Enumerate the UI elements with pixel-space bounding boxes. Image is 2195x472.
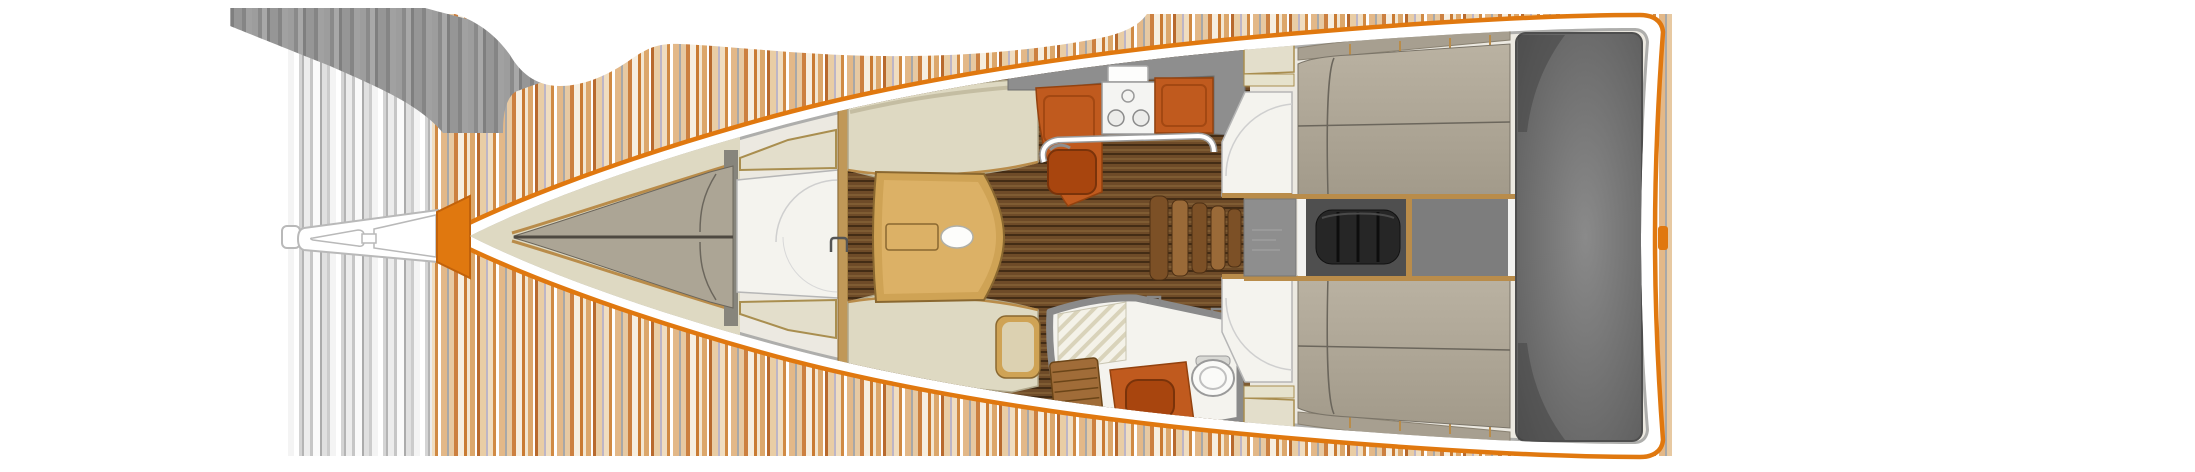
galley-oven [1108,66,1148,82]
boat-floorplan-image [0,0,2195,472]
port-locker-shelf [1244,386,1294,398]
engine-compartment [1244,194,1516,281]
separator-left [1298,199,1306,276]
machinery-divider [1406,199,1412,276]
companionway-step-1 [1150,196,1168,280]
stbd-locker-shelf [1244,74,1294,86]
aft-bay [1412,199,1508,276]
chaise-cushion [1002,322,1034,372]
companionway-step-4 [1211,206,1225,270]
systems-panel [1244,199,1296,276]
toilet-bowl [1192,360,1234,396]
table-sink-oval [941,226,973,248]
main-bulkhead [838,88,848,384]
companionway-step-5 [1228,209,1241,267]
companionway-step-3 [1192,203,1207,273]
bowsprit-joint [362,234,376,243]
stbd-berth [1298,44,1510,196]
separator-right [1508,199,1516,276]
saloon-table-top [882,180,996,294]
stove-burner-left [1108,110,1124,126]
port-berth [1298,276,1510,428]
cockpit-floor [1516,33,1642,441]
stern-fitting [1658,226,1668,250]
machinery-frame-top [1244,194,1516,199]
companionway-step-2 [1172,200,1188,276]
forward-head [737,130,838,338]
stove-burner-right [1133,110,1149,126]
machinery-frame-bottom [1244,276,1516,281]
cockpit [1516,33,1642,441]
galley-sink [1048,150,1096,194]
fwd-head-floor [737,170,838,298]
